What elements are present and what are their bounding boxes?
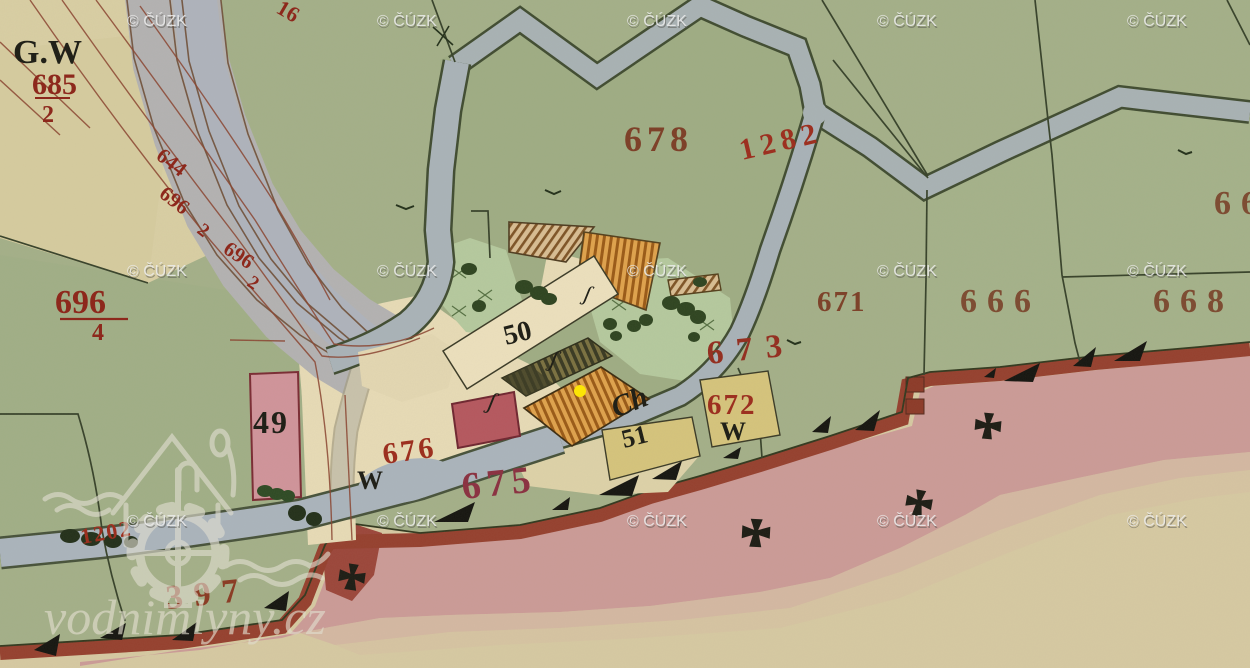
svg-text:vodnimlyny.cz: vodnimlyny.cz [44,589,326,645]
svg-text:© ČÚZK: © ČÚZK [377,261,437,280]
svg-text:© ČÚZK: © ČÚZK [377,11,437,30]
svg-text:© ČÚZK: © ČÚZK [127,511,187,530]
svg-text:© ČÚZK: © ČÚZK [127,11,187,30]
svg-text:© ČÚZK: © ČÚZK [1127,511,1187,530]
svg-text:© ČÚZK: © ČÚZK [1127,11,1187,30]
svg-text:© ČÚZK: © ČÚZK [627,261,687,280]
svg-text:© ČÚZK: © ČÚZK [627,511,687,530]
svg-text:© ČÚZK: © ČÚZK [877,11,937,30]
svg-text:© ČÚZK: © ČÚZK [877,511,937,530]
svg-text:© ČÚZK: © ČÚZK [877,261,937,280]
svg-text:© ČÚZK: © ČÚZK [627,11,687,30]
svg-text:© ČÚZK: © ČÚZK [127,261,187,280]
svg-text:© ČÚZK: © ČÚZK [1127,261,1187,280]
svg-text:© ČÚZK: © ČÚZK [377,511,437,530]
